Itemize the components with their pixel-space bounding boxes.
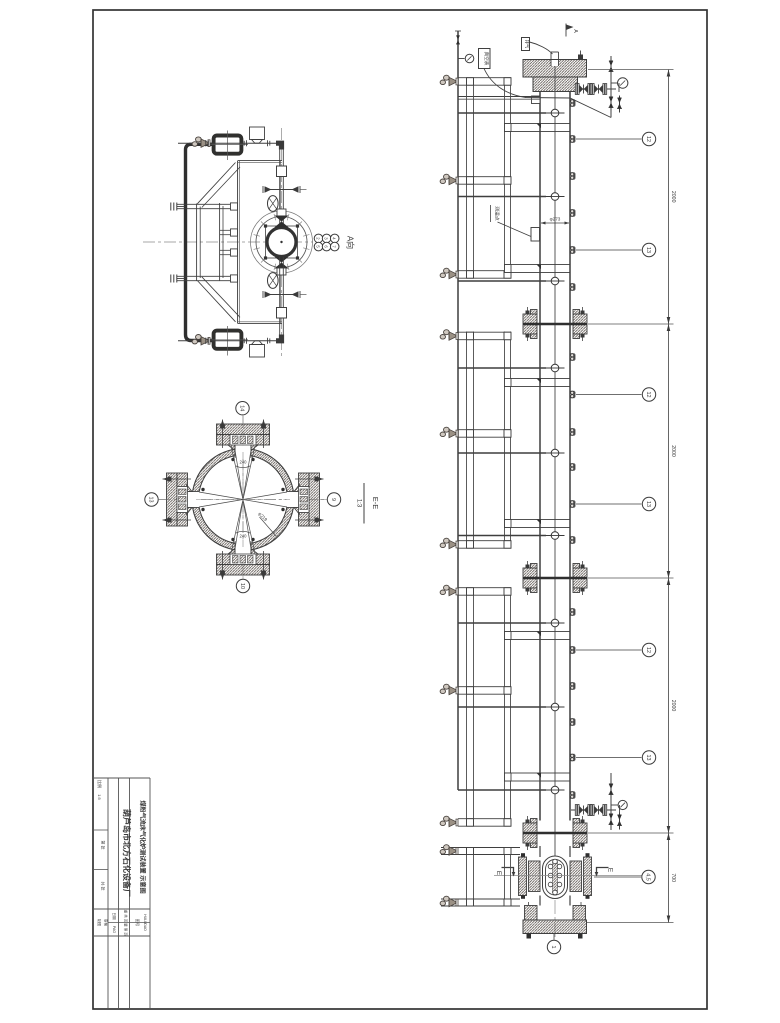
svg-text:排气: 排气 (524, 40, 531, 49)
svg-text:第 张: 第 张 (101, 840, 107, 849)
svg-text:制图: 制图 (97, 919, 102, 927)
svg-text:共 张: 共 张 (101, 881, 107, 890)
svg-text:审核: 审核 (104, 919, 109, 927)
svg-text:HULUDAO: HULUDAO (143, 914, 147, 931)
svg-text:13: 13 (148, 497, 154, 503)
svg-text:700: 700 (670, 873, 676, 882)
svg-text:2000: 2000 (670, 191, 676, 203)
svg-text:1: 1 (550, 946, 556, 949)
svg-text:2000: 2000 (670, 700, 676, 712)
svg-text:E: E (607, 868, 614, 873)
svg-text:图号: 图号 (135, 919, 140, 927)
svg-text:10: 10 (239, 583, 245, 589)
svg-text:2000: 2000 (670, 445, 676, 457)
svg-text:A向: A向 (346, 236, 356, 249)
svg-text:240: 240 (240, 460, 248, 465)
svg-text:比例: 比例 (97, 780, 103, 788)
svg-text:4,5: 4,5 (645, 873, 651, 881)
svg-text:12: 12 (645, 647, 651, 653)
svg-text:煤粉气流床气化炉测试装置 示意图: 煤粉气流床气化炉测试装置 示意图 (139, 800, 147, 893)
svg-text:1:5: 1:5 (97, 794, 102, 800)
svg-text:13: 13 (645, 755, 651, 761)
svg-text:重 共 页: 重 共 页 (124, 910, 129, 923)
svg-text:E-E: E-E (371, 497, 380, 510)
svg-text:PAG: PAG (112, 926, 116, 934)
svg-text:E: E (495, 871, 502, 876)
svg-text:240: 240 (240, 534, 248, 539)
svg-text:日期: 日期 (112, 912, 117, 920)
svg-text:9: 9 (330, 498, 336, 501)
svg-text:14: 14 (239, 405, 245, 411)
svg-text:葫芦岛市北方石化设备厂: 葫芦岛市北方石化设备厂 (122, 809, 132, 897)
svg-text:12: 12 (645, 136, 651, 142)
svg-text:12: 12 (645, 392, 651, 398)
svg-text:1:3: 1:3 (356, 499, 362, 508)
svg-text:13: 13 (645, 247, 651, 253)
svg-text:φ273: φ273 (550, 216, 561, 221)
svg-text:量 第 页: 量 第 页 (124, 923, 129, 936)
svg-text:13: 13 (645, 501, 651, 507)
svg-text:真空表: 真空表 (483, 52, 490, 66)
svg-text:测温点: 测温点 (494, 206, 501, 221)
